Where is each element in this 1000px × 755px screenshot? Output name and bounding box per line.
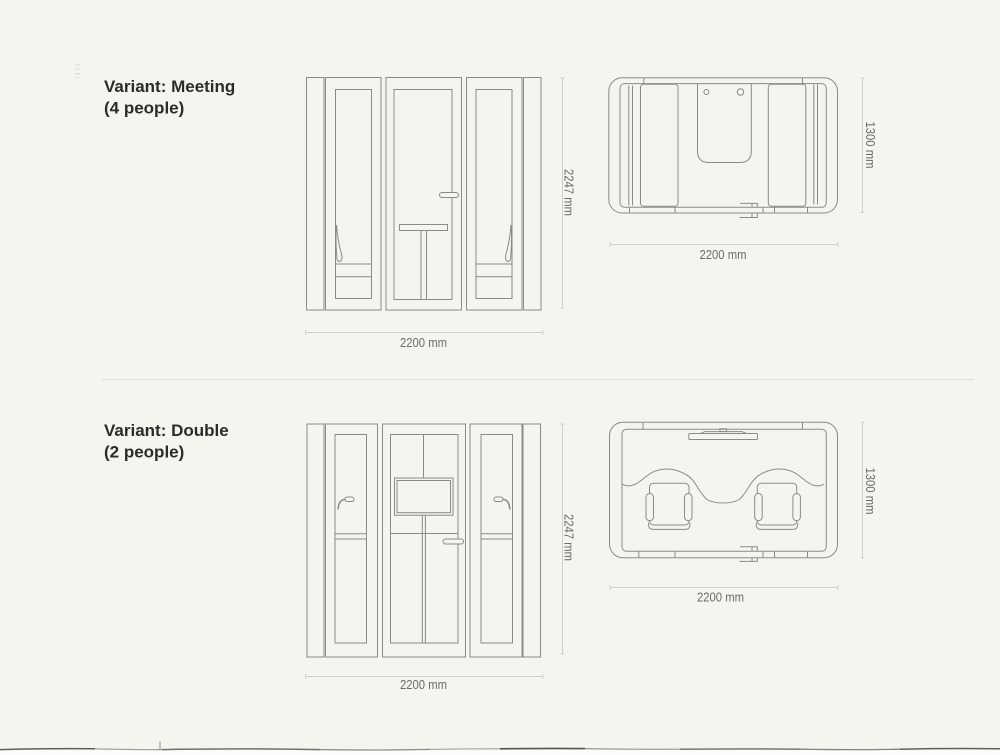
svg-text:1300 mm: 1300 mm (863, 122, 877, 169)
svg-text:2200 mm: 2200 mm (400, 678, 447, 692)
svg-text:Variant: Double: Variant: Double (104, 421, 229, 440)
svg-text:(4 people): (4 people) (104, 99, 184, 118)
svg-text:2247 mm: 2247 mm (562, 514, 576, 561)
svg-text:2200 mm: 2200 mm (400, 336, 447, 350)
svg-text:Variant: Meeting: Variant: Meeting (104, 77, 235, 96)
svg-text:(2 people): (2 people) (104, 443, 184, 462)
svg-text:2200 mm: 2200 mm (700, 248, 747, 262)
svg-text:1300 mm: 1300 mm (863, 468, 877, 515)
svg-text:2247 mm: 2247 mm (562, 169, 576, 216)
svg-text:2200 mm: 2200 mm (697, 591, 744, 605)
